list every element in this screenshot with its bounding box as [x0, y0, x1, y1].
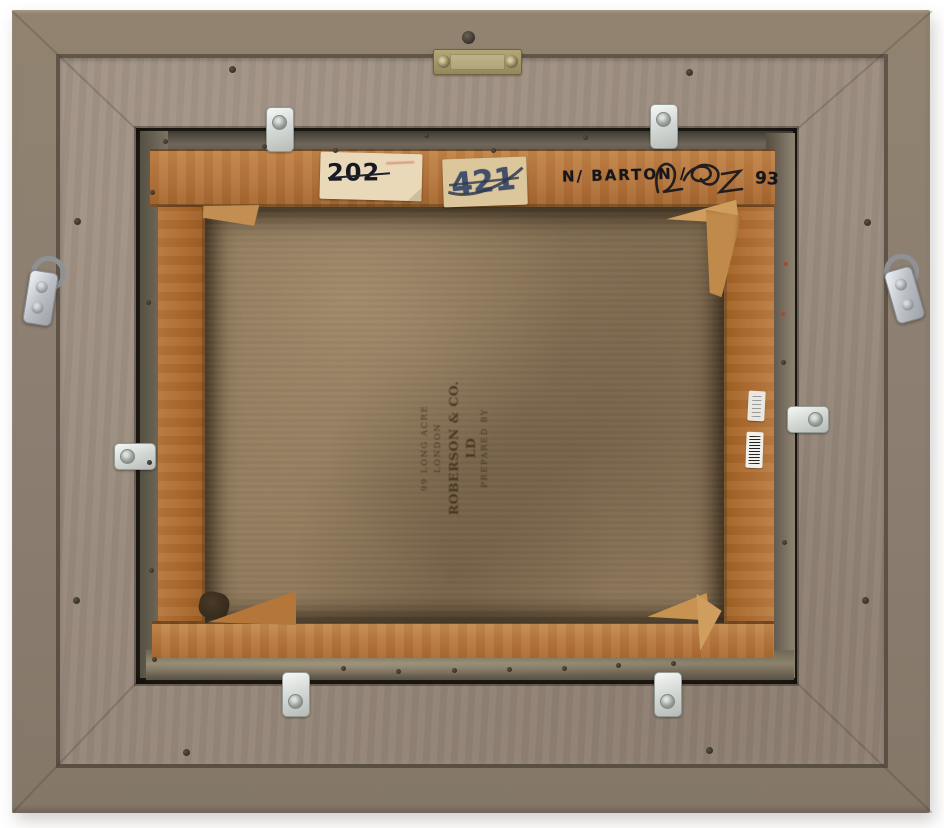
d-ring-plate — [22, 269, 59, 327]
turn-clip-bottom-right — [654, 672, 682, 717]
clip-screw — [808, 412, 823, 427]
plate-screw — [894, 277, 909, 292]
d-ring-hanger-left — [20, 250, 80, 340]
canvas-tack — [163, 139, 168, 144]
canvas-tack — [146, 300, 151, 305]
paint-speck — [784, 262, 788, 266]
canvas-tack — [396, 669, 401, 674]
canvas-tack — [262, 144, 267, 149]
artist-signature — [648, 152, 756, 206]
brass-screw — [505, 55, 518, 68]
plate-screw — [35, 280, 49, 294]
turn-clip-right — [787, 406, 829, 433]
stretcher-bar-left — [158, 205, 205, 625]
canvas-tack — [781, 360, 786, 365]
stock-number-text: 202 — [327, 158, 380, 186]
turn-clip-bottom-left — [282, 672, 310, 717]
canvas-tack — [782, 540, 787, 545]
inscription-year: 93 — [754, 168, 779, 190]
canvas-tack — [583, 135, 588, 140]
inventory-sticker — [747, 391, 766, 422]
photo-framed-painting-back: 99 LONG ACRE LONDON ROBERSON & CO. LD PR… — [0, 0, 944, 828]
canvas-tack — [616, 663, 621, 668]
canvas-tack — [150, 190, 155, 195]
stamp-line-maker: ROBERSON & CO. LD — [445, 378, 479, 518]
stamp-line-prepared: PREPARED BY — [479, 378, 492, 518]
stamp-line-address: 99 LONG ACRE LONDON — [419, 378, 445, 518]
clip-screw — [656, 112, 671, 127]
brass-screw — [437, 55, 450, 68]
canvas-tack — [424, 133, 429, 138]
turn-clip-left — [114, 443, 156, 470]
clip-screw — [660, 694, 675, 709]
stock-number-label: 202 — [319, 152, 422, 202]
turn-clip-top-right — [650, 104, 678, 149]
screw-hole — [686, 69, 693, 76]
clip-screw — [272, 115, 287, 130]
screw-hole — [862, 597, 869, 604]
stretcher-bar-bottom — [152, 621, 774, 658]
strike-through-swoosh — [442, 157, 528, 208]
screw-hole — [73, 597, 80, 604]
brass-hanger-plate — [433, 49, 522, 75]
frame-screw — [462, 31, 475, 44]
canvas-maker-stamp: 99 LONG ACRE LONDON ROBERSON & CO. LD PR… — [419, 378, 475, 518]
screw-hole — [229, 66, 236, 73]
canvas-tack — [562, 666, 567, 671]
clip-screw — [120, 449, 135, 464]
canvas-tack — [333, 148, 338, 153]
paint-speck — [781, 312, 785, 316]
canvas-tack — [671, 661, 676, 666]
screw-hole — [74, 218, 81, 225]
d-ring-hanger-right — [878, 246, 938, 336]
plate-screw — [900, 297, 915, 312]
canvas-tack — [147, 460, 152, 465]
turn-clip-top-left — [266, 107, 294, 152]
faint-red-inscription — [386, 161, 414, 168]
canvas-tack — [149, 568, 154, 573]
lot-number-label: 421 — [442, 157, 528, 208]
canvas-tack — [152, 657, 157, 662]
canvas-tack — [491, 148, 496, 153]
screw-hole — [864, 219, 871, 226]
screw-hole — [183, 749, 190, 756]
canvas-tack — [452, 668, 457, 673]
d-ring-plate — [883, 265, 926, 325]
canvas-tack — [507, 667, 512, 672]
screw-hole — [706, 747, 713, 754]
plate-screw — [31, 301, 45, 315]
clip-screw — [288, 694, 303, 709]
barcode-sticker — [745, 432, 763, 469]
canvas-tack — [341, 666, 346, 671]
